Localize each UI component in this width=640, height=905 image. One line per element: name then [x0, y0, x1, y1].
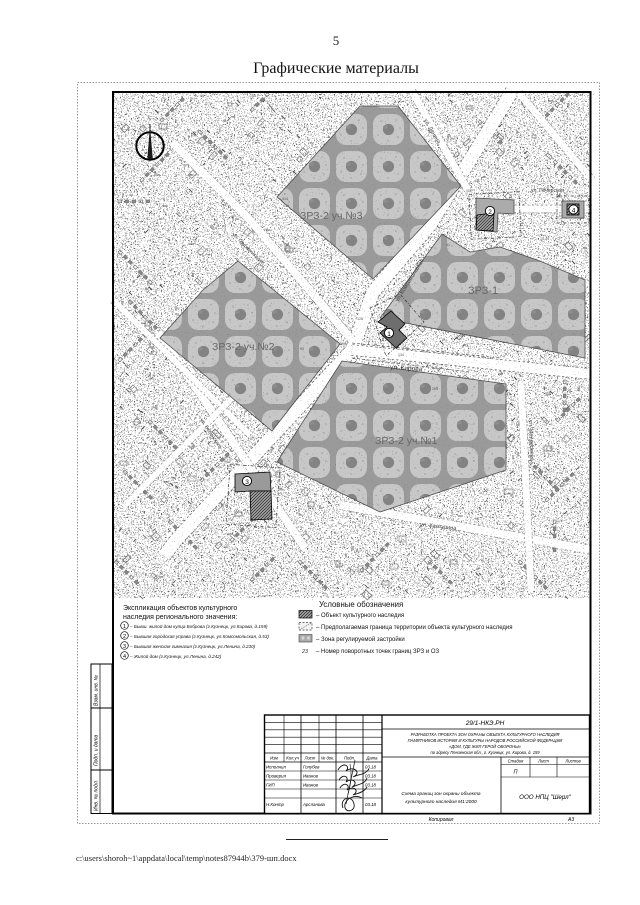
svg-text:ГИП: ГИП [266, 783, 276, 788]
svg-text:03.18: 03.18 [365, 802, 377, 807]
svg-text:87: 87 [250, 437, 254, 441]
svg-text:– Зона регулируемой застройки: – Зона регулируемой застройки [316, 636, 405, 643]
svg-text:ПАМЯТНИКОВ ИСТОРИИ И КУЛЬТУРЫ: ПАМЯТНИКОВ ИСТОРИИ И КУЛЬТУРЫ НАРОДОВ РО… [408, 738, 563, 743]
svg-text:3: 3 [245, 479, 249, 486]
svg-text:– Объект культурного наследия: – Объект культурного наследия [316, 613, 404, 619]
svg-text:56: 56 [205, 517, 209, 521]
svg-text:ЗРЗ-2 уч.№1: ЗРЗ-2 уч.№1 [375, 435, 438, 447]
svg-text:116: 116 [505, 392, 511, 396]
svg-text:«ДОМ, ГДЕ ЖИЛ ГЕРОЙ ОБОРОНЫ»: «ДОМ, ГДЕ ЖИЛ ГЕРОЙ ОБОРОНЫ» [449, 744, 522, 749]
svg-text:Иванов: Иванов [303, 774, 319, 779]
svg-text:Экспликация объектов культурно: Экспликация объектов культурного [123, 604, 237, 612]
svg-text:Листов: Листов [564, 759, 581, 764]
svg-text:Изм: Изм [270, 756, 278, 761]
svg-text:99: 99 [475, 517, 479, 521]
svg-text:А3: А3 [567, 817, 574, 823]
svg-text:№ док.: № док. [321, 756, 334, 761]
svg-text:Условные обозначения: Условные обозначения [319, 600, 403, 609]
svg-text:Схема границ зон охраны объект: Схема границ зон охраны объекта [401, 791, 481, 797]
svg-text:Взам. инв. №: Взам. инв. № [94, 674, 100, 706]
svg-text:ООО НПЦ "Шерл": ООО НПЦ "Шерл" [519, 794, 571, 801]
svg-text:ЗРЗ-2 уч.№3: ЗРЗ-2 уч.№3 [300, 210, 363, 222]
svg-text:ЗРЗ-2 уч.№2: ЗРЗ-2 уч.№2 [212, 341, 275, 353]
svg-text:Дата: Дата [365, 756, 378, 761]
svg-text:по адресу Пензенская обл., г.: по адресу Пензенская обл., г. Кузнецк, у… [430, 750, 540, 755]
svg-text:Стадия: Стадия [508, 759, 524, 764]
svg-text:Копировал: Копировал [429, 817, 454, 823]
svg-text:наследия регионального значени: наследия регионального значения: [123, 614, 237, 621]
svg-text:Арсланова: Арсланова [302, 802, 326, 807]
svg-text:– Жилой дом (г.Кузнецк, ул.Ле: – Жилой дом (г.Кузнецк, ул.Ленина, д.242… [129, 653, 222, 659]
svg-text:128: 128 [357, 317, 363, 321]
svg-text:29/1-НКЭ.РН: 29/1-НКЭ.РН [465, 720, 505, 727]
svg-text:– Бывш. жилой дом купца Бобро: – Бывш. жилой дом купца Боброва (г.Кузне… [129, 623, 268, 629]
svg-text:115: 115 [545, 392, 551, 396]
svg-text:культурного наследия М1:2000: культурного наследия М1:2000 [405, 799, 477, 805]
svg-text:41: 41 [446, 243, 450, 247]
svg-text:П: П [514, 770, 518, 776]
svg-text:– Бывшая женская гимназия (г.: – Бывшая женская гимназия (г.Кузнецк, ул… [129, 644, 256, 649]
svg-text:134: 134 [398, 353, 404, 357]
svg-text:68: 68 [310, 522, 314, 526]
svg-text:Иванов: Иванов [303, 783, 319, 788]
svg-text:1: 1 [387, 331, 391, 338]
svg-text:413: 413 [283, 204, 289, 208]
svg-text:Лист: Лист [537, 759, 549, 764]
svg-text:4: 4 [572, 208, 576, 215]
svg-text:03.18: 03.18 [365, 783, 377, 788]
svg-text:205: 205 [432, 387, 438, 391]
svg-text:Подп.: Подп. [344, 756, 355, 761]
svg-text:ул. Печерская: ул. Печерская [531, 188, 564, 194]
svg-text:– Номер поворотных точек гран: – Номер поворотных точек границ ЗРЗ и ОЗ [316, 649, 440, 655]
svg-text:4: 4 [123, 654, 126, 660]
svg-text:Лист: Лист [304, 756, 316, 761]
svg-text:23: 23 [301, 649, 308, 655]
svg-text:Инв. № подл.: Инв. № подл. [94, 780, 100, 811]
svg-text:2: 2 [488, 209, 492, 216]
svg-text:Подп. и дата: Подп. и дата [94, 734, 100, 766]
svg-text:ЗРЗ-1: ЗРЗ-1 [468, 285, 498, 297]
svg-text:Голубев: Голубев [303, 765, 320, 770]
svg-text:93: 93 [300, 347, 304, 351]
svg-text:03.18: 03.18 [365, 774, 377, 779]
svg-text:zdn: zdn [560, 250, 566, 254]
svg-text:2: 2 [123, 634, 126, 640]
svg-text:РАЗРАБОТКА ПРОЕКТА ЗОН ОХРАНЫ: РАЗРАБОТКА ПРОЕКТА ЗОН ОХРАНЫ ОБЪЕКТА КУ… [411, 732, 560, 737]
svg-text:Кол.уч: Кол.уч [286, 756, 299, 761]
svg-text:03.18: 03.18 [365, 765, 377, 770]
svg-text:Н.Контр: Н.Контр [266, 802, 284, 807]
svg-text:190: 190 [340, 342, 346, 346]
svg-text:3: 3 [123, 644, 126, 650]
svg-text:Исполнил: Исполнил [266, 765, 286, 770]
svg-text:– Предполагаемая граница терр: – Предполагаемая граница территории объе… [316, 625, 513, 631]
svg-text:414: 414 [282, 197, 288, 201]
svg-text:102: 102 [466, 189, 472, 193]
svg-text:Проверил: Проверил [266, 774, 287, 779]
svg-text:1: 1 [123, 624, 126, 630]
svg-text:10-41: 10-41 [540, 237, 549, 241]
svg-text:– Бывшая городская управа (г.: – Бывшая городская управа (г.Кузнецк, ул… [129, 634, 269, 639]
